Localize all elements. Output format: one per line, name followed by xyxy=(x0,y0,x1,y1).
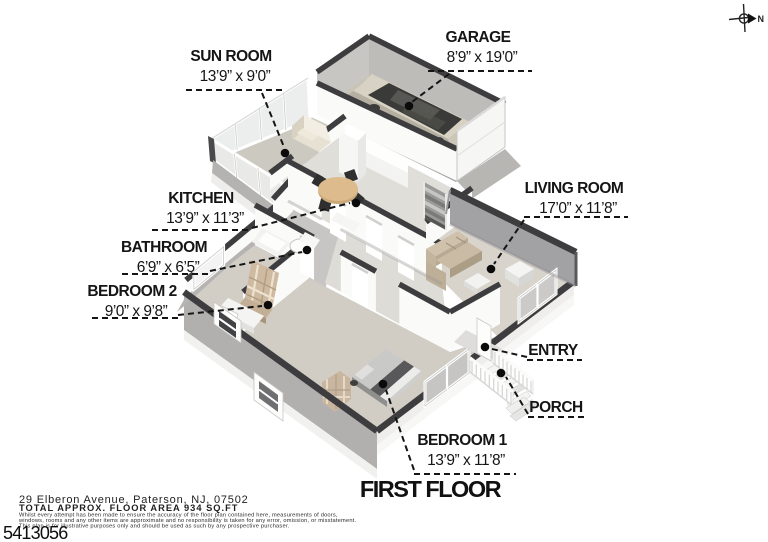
svg-text:ENTRY: ENTRY xyxy=(528,342,579,359)
svg-text:5413056: 5413056 xyxy=(3,523,68,542)
svg-text:GARAGE: GARAGE xyxy=(445,29,510,46)
svg-text:BEDROOM 1: BEDROOM 1 xyxy=(417,432,507,449)
svg-text:13’9” x 11’3”: 13’9” x 11’3” xyxy=(166,210,244,227)
svg-text:LIVING ROOM: LIVING ROOM xyxy=(525,180,624,197)
svg-text:13’9” x 11’8”: 13’9” x 11’8” xyxy=(427,452,505,469)
svg-text:BEDROOM 2: BEDROOM 2 xyxy=(87,283,176,300)
svg-text:N: N xyxy=(758,14,765,24)
svg-text:PORCH: PORCH xyxy=(529,399,583,416)
svg-text:TOTAL APPROX. FLOOR AREA 934 S: TOTAL APPROX. FLOOR AREA 934 SQ.FT xyxy=(19,503,238,513)
svg-text:13’9” x 9’0”: 13’9” x 9’0” xyxy=(200,68,271,85)
svg-text:KITCHEN: KITCHEN xyxy=(168,190,234,207)
svg-text:BATHROOM: BATHROOM xyxy=(121,239,207,256)
svg-text:17’0” x 11’8”: 17’0” x 11’8” xyxy=(539,200,617,217)
svg-text:SUN ROOM: SUN ROOM xyxy=(190,48,271,65)
svg-text:8’9” x 19’0”: 8’9” x 19’0” xyxy=(447,49,518,66)
svg-text:FIRST FLOOR: FIRST FLOOR xyxy=(360,476,502,502)
